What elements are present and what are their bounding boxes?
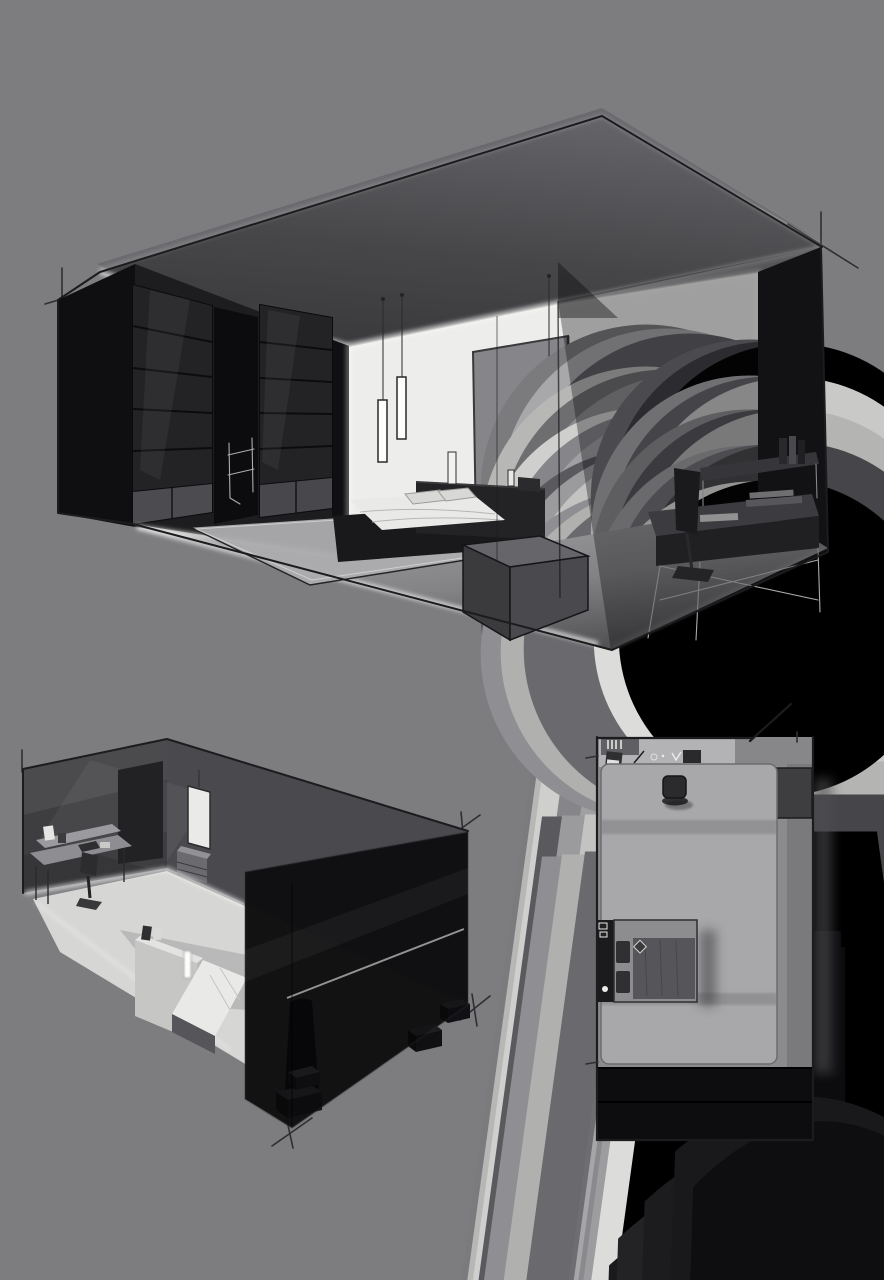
- notebook: [100, 842, 110, 848]
- doorway-dark: [118, 761, 163, 864]
- small-lamp: [508, 470, 514, 486]
- book: [58, 833, 66, 843]
- floor-plan-view: [586, 704, 832, 1140]
- book: [43, 825, 55, 840]
- concept-sketch-canvas: [0, 0, 884, 1280]
- plan-lamp: [602, 986, 608, 992]
- plan-box-item: [683, 750, 701, 763]
- desk-chair: [80, 852, 98, 876]
- plan-pillow: [616, 971, 630, 993]
- plan-closet-band: [597, 1068, 813, 1140]
- plan-entry: [735, 737, 813, 766]
- wall-poster: [188, 786, 210, 849]
- plan-books: [600, 932, 607, 937]
- plan-pillow: [616, 941, 630, 963]
- plan-shadow: [814, 778, 832, 1073]
- bedside-lamp: [184, 951, 191, 978]
- headboard-lamp: [448, 452, 456, 484]
- plan-light-seam: [601, 820, 777, 834]
- closet-glass: [245, 832, 468, 1128]
- left-outer-wall: [58, 264, 135, 527]
- book: [152, 928, 161, 941]
- plan-desk: [599, 738, 735, 767]
- plan-rug: [601, 764, 777, 1064]
- chair-stem: [88, 876, 90, 898]
- plan-dot-item: [662, 755, 664, 757]
- plan-bed-shadow: [700, 930, 716, 1006]
- doorway-dark: [214, 307, 258, 524]
- plan-books: [599, 923, 607, 929]
- nightstand: [518, 477, 540, 492]
